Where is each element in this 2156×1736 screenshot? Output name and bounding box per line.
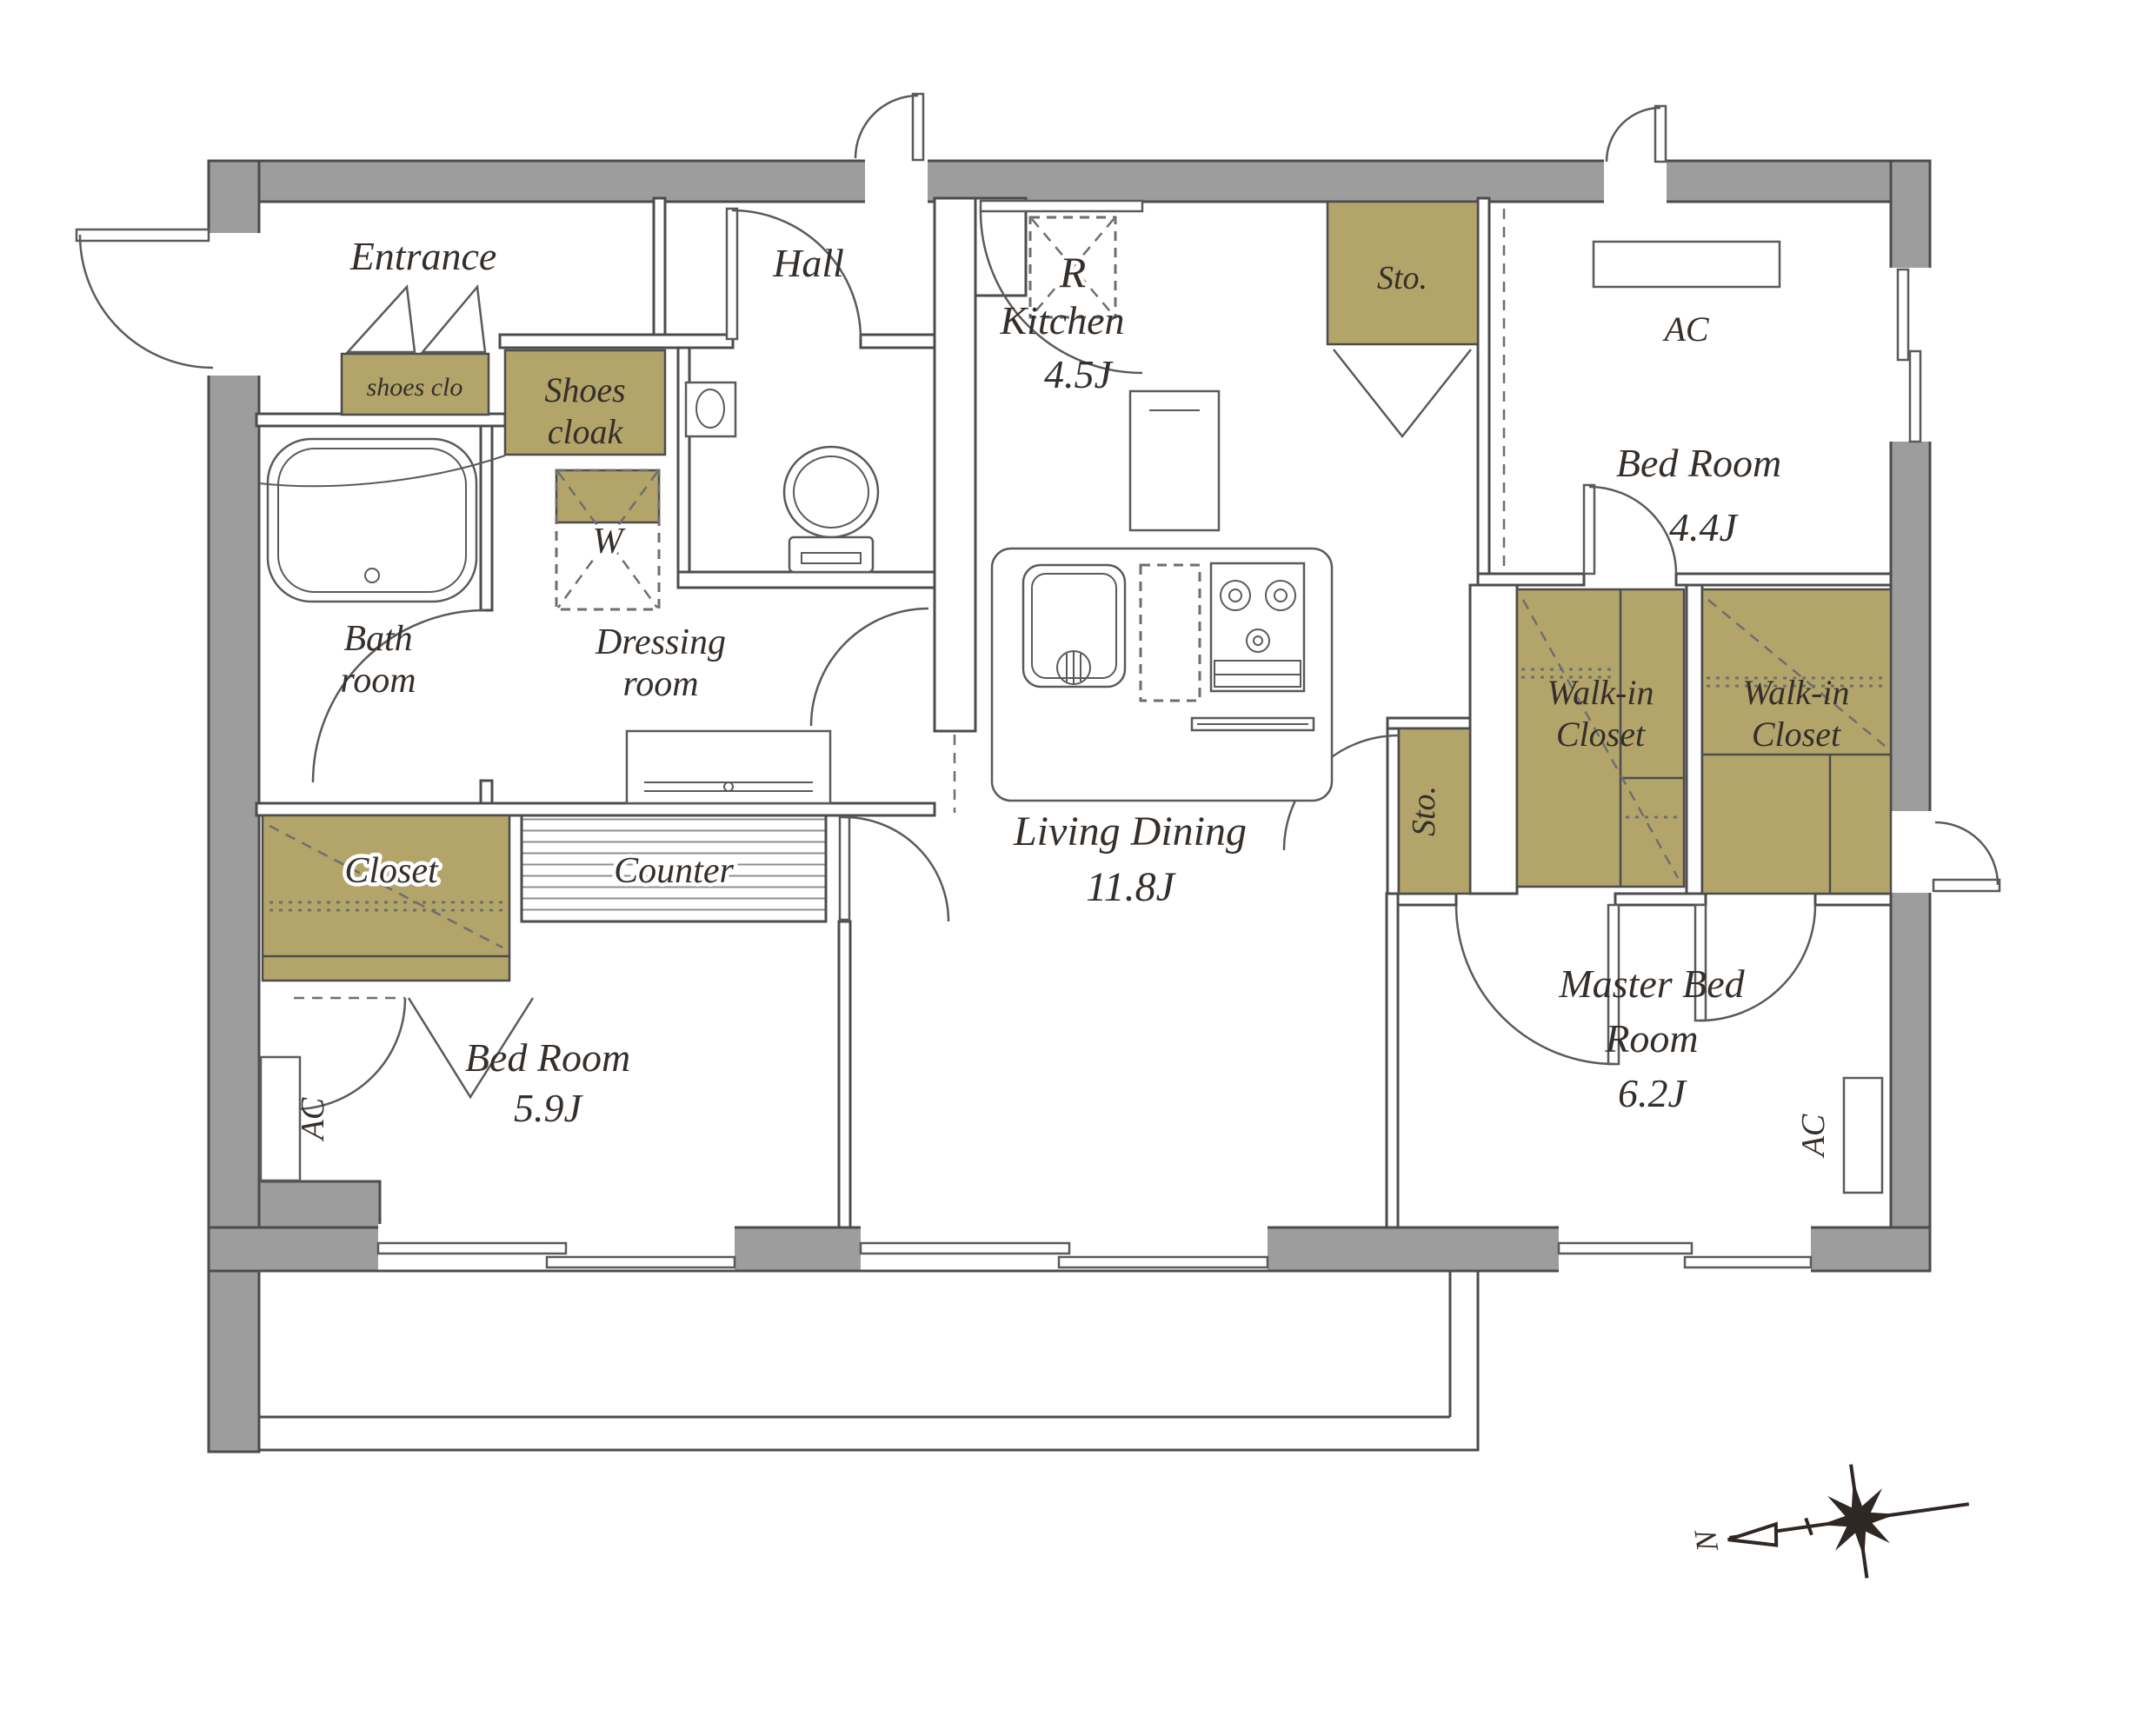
door-entrance [77, 229, 213, 368]
shoes-clo-door [423, 287, 485, 352]
north-arrow [1727, 1524, 1779, 1552]
wall-wc-west [678, 348, 689, 572]
label-counter: Counter [614, 851, 734, 891]
wall-wic-west [1470, 585, 1517, 894]
wall-living-master [1387, 894, 1398, 1227]
door-bedroom-south [840, 817, 948, 921]
wall-bath-dressing [481, 426, 492, 610]
label-bedroom-south-area: 5.9J [514, 1086, 584, 1130]
label-shoes-cloak-2: cloak [548, 412, 624, 451]
door-north-hall [855, 94, 923, 160]
door-east-service [1933, 822, 2000, 891]
label-bath-1: Bath [343, 619, 412, 659]
label-bedroom-north: Bed Room [1616, 441, 1781, 485]
label-kitchen-area: 4.5J [1044, 352, 1115, 396]
label-storage-top: Sto. [1377, 260, 1427, 296]
balcony [259, 1271, 1478, 1450]
label-refrigerator: R [1059, 248, 1087, 296]
label-living-dining: Living Dining [1013, 808, 1247, 855]
wall-bedroom-north-west [1478, 198, 1489, 585]
kitchen-stove [1211, 563, 1304, 691]
label-wic-right-2: Closet [1752, 715, 1841, 754]
wall-entrance-hall [654, 198, 665, 339]
label-master-area: 6.2J [1618, 1071, 1688, 1115]
label-wic-right-1: Walk-in [1743, 673, 1850, 712]
bathtub [268, 439, 476, 602]
wc-basin [686, 382, 735, 436]
pier-kitchen [975, 198, 1026, 296]
label-bath-2: room [340, 661, 416, 701]
wall-wc-south [678, 572, 975, 588]
closet-area [263, 815, 509, 981]
label-hall: Hall [772, 241, 844, 285]
label-bedroom-north-area: 4.4J [1669, 505, 1740, 549]
floor-plan: N Entrance Hall shoes clo Shoes cloak W … [0, 0, 2156, 1736]
door-storage-top-folding [1334, 349, 1471, 436]
label-kitchen: Kitchen [999, 298, 1124, 343]
label-ac-master: AC [1795, 1114, 1832, 1159]
label-closet: Closet [344, 851, 439, 891]
wall-south-step [259, 1181, 380, 1227]
label-master-2: Room [1604, 1016, 1698, 1061]
label-storage-mid: Sto. [1406, 786, 1442, 836]
label-shoes-cloak-1: Shoes [544, 370, 625, 409]
label-washer: W [593, 522, 627, 562]
label-ac-south: AC [295, 1097, 331, 1142]
wall-dressing-south [256, 803, 935, 815]
label-wic-left-2: Closet [1556, 715, 1646, 754]
door-dressing [811, 609, 928, 726]
label-living-dining-area: 11.8J [1086, 864, 1176, 910]
compass: N [1681, 1449, 1977, 1602]
label-ac-north: AC [1661, 309, 1709, 349]
kitchen-cabinet [1130, 391, 1219, 530]
ac-unit-master [1844, 1078, 1882, 1193]
shoes-clo-door [348, 287, 415, 352]
label-dressing-1: Dressing [595, 622, 726, 662]
wall-wic-mid [1687, 585, 1702, 894]
door-north-bedroom [1607, 106, 1666, 162]
wall-north [209, 161, 1930, 202]
kitchen-island [992, 549, 1332, 801]
label-dressing-2: room [622, 664, 698, 704]
toilet [784, 447, 878, 572]
wall-kitchen-west [935, 198, 975, 731]
ac-unit-bedroom-north [1594, 242, 1780, 287]
label-shoes-clo: shoes clo [367, 373, 463, 402]
wall-bedroom-living [839, 921, 850, 1227]
label-master-1: Master Bed [1558, 961, 1745, 1006]
door-bedroom-north [1584, 485, 1676, 574]
compass-rose [1814, 1475, 1903, 1564]
vanity-basin [627, 731, 830, 803]
label-wic-left-1: Walk-in [1547, 673, 1654, 712]
label-bedroom-south: Bed Room [465, 1035, 630, 1080]
compass-north-label: N [1687, 1526, 1725, 1554]
label-entrance: Entrance [349, 234, 497, 278]
